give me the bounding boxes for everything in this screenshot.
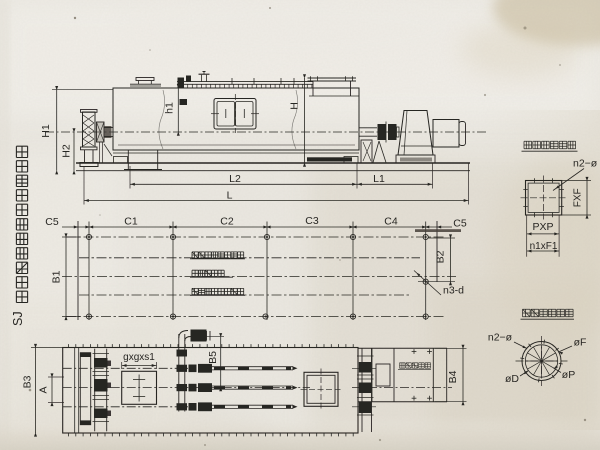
svg-text:C4: C4 <box>384 216 398 228</box>
svg-text:L2: L2 <box>229 173 241 185</box>
svg-text:H1: H1 <box>40 124 52 138</box>
svg-text:B1: B1 <box>51 270 63 283</box>
svg-text:gxgxs1: gxgxs1 <box>123 352 155 363</box>
svg-text:B2: B2 <box>435 250 447 263</box>
svg-text:L1: L1 <box>373 173 385 185</box>
svg-text:n2−ø: n2−ø <box>488 332 513 344</box>
svg-text:C5: C5 <box>453 218 467 230</box>
svg-text:n1xF1: n1xF1 <box>530 241 558 252</box>
svg-text:A: A <box>38 386 50 393</box>
svg-text:n2−ø: n2−ø <box>573 158 598 170</box>
svg-text:C1: C1 <box>124 216 138 228</box>
svg-text:B3: B3 <box>22 375 34 388</box>
svg-text:C2: C2 <box>220 215 234 227</box>
svg-text:øD: øD <box>505 373 519 385</box>
svg-text:FXF: FXF <box>573 188 584 207</box>
svg-text:H2: H2 <box>61 144 73 158</box>
svg-text:B4: B4 <box>447 370 459 383</box>
svg-text:øF: øF <box>574 337 587 349</box>
svg-text:h1: h1 <box>164 102 176 114</box>
svg-text:øP: øP <box>562 369 575 381</box>
svg-text:C5: C5 <box>45 216 59 228</box>
svg-text:PXP: PXP <box>532 221 553 233</box>
svg-text:C3: C3 <box>305 215 319 227</box>
svg-text:n3-d: n3-d <box>443 285 464 297</box>
svg-text:SJ: SJ <box>11 311 25 326</box>
svg-text:L: L <box>227 190 233 202</box>
svg-text:H: H <box>289 102 301 110</box>
svg-text:B5: B5 <box>207 351 219 364</box>
